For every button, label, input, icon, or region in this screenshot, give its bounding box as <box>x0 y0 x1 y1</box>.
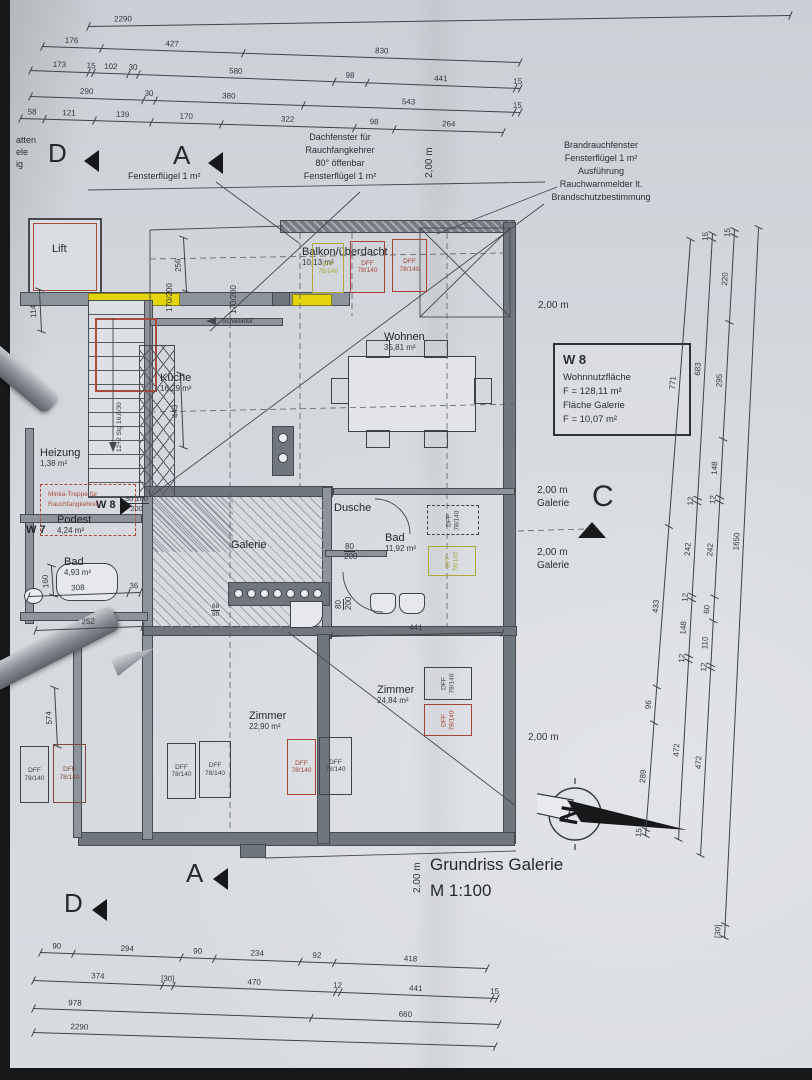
dff-window-box: DFF78/140 <box>428 546 476 576</box>
dff-window-box: DFF78/140 <box>350 241 385 293</box>
title-block: Grundriss Galerie M 1:100 <box>430 855 563 901</box>
dff-window-label: DFF78/140 <box>326 759 346 774</box>
dimension-text: 12+2 Stg 16,8/30 <box>116 402 123 452</box>
room-area: 4,93 m² <box>64 568 91 577</box>
annotation-text: Minka-Treppe fürRauchfangkehrer <box>48 490 98 509</box>
dff-window-box: DFF78/140 <box>287 739 316 795</box>
dimension-value: 15 <box>701 232 710 241</box>
dimension-value: 441 <box>409 623 423 632</box>
dimension-value: 374 <box>91 971 105 981</box>
unit-id: W 8 <box>563 352 681 367</box>
dimension-value: 771 <box>668 376 678 390</box>
dimension-value: 294 <box>120 944 134 953</box>
room-area: 1,38 m² <box>40 459 80 468</box>
dff-window-box: DFF78/140 <box>424 667 472 700</box>
dimension-value: 308 <box>71 583 85 592</box>
entry-arrow <box>120 497 132 515</box>
dimension-value: 472 <box>672 743 682 757</box>
annotation-text: BrandrauchfensterFensterflügel 1 m²Ausfü… <box>551 139 650 204</box>
dimension-value: 114 <box>29 305 39 318</box>
dimension-value: 289 <box>638 769 648 783</box>
dff-window-label: DFF78/140 <box>358 260 378 275</box>
dff-window-box: DFF78/140 <box>167 743 196 799</box>
dimension-value: 574 <box>44 711 54 725</box>
room-area: 4,24 m² <box>57 526 91 535</box>
dimension-value: 58 <box>28 107 37 116</box>
dimension-value: 92 <box>312 951 321 960</box>
dimension-value: 160 <box>41 574 51 588</box>
dimension-value: 15 <box>723 228 732 237</box>
dimension-value: 173 <box>53 60 67 69</box>
dimension-value: 543 <box>402 97 416 106</box>
dimension-value: 441 <box>409 984 423 994</box>
dimension-value: 295 <box>714 374 724 388</box>
dff-window-label: DFF78/140 <box>444 551 459 571</box>
dimension-value: 242 <box>683 542 693 556</box>
section-marker-a: A <box>173 140 190 171</box>
dimension-value: 98 <box>345 71 354 80</box>
info-line: F = 10,07 m² <box>563 413 681 427</box>
annotation-text: 2,00 mGalerie <box>537 484 569 510</box>
dff-window-box: DFF78/140 <box>312 243 344 293</box>
section-marker-a: A <box>186 858 203 889</box>
dimension-value: 12 <box>708 495 717 504</box>
annotation-text: Fensterflügel 1 m² <box>128 170 201 183</box>
dff-window-label: DFF78/140 <box>318 261 338 276</box>
section-marker-triangle <box>213 868 228 890</box>
dimension-value: 90 <box>193 946 202 955</box>
dimension-value: 256 <box>173 258 183 272</box>
annotation-text: Schiebetür <box>222 317 253 327</box>
dimension-text: 2,00 m <box>412 862 423 893</box>
dimension-value: 830 <box>375 46 389 55</box>
room-label: Galerie <box>231 539 266 551</box>
dimension-value: 441 <box>434 74 448 83</box>
dimension-text: 6880 <box>211 603 220 618</box>
dimension-value: 472 <box>694 756 704 770</box>
section-marker-d: D <box>64 888 83 919</box>
dimension-value: 978 <box>68 998 82 1007</box>
room-label: Wohnen35,81 m² <box>384 331 425 352</box>
section-marker-triangle <box>578 522 606 538</box>
dimension-value: 102 <box>104 62 118 71</box>
dimension-value: 12 <box>680 593 689 602</box>
dff-window-label: DFF78/140 <box>172 764 192 779</box>
dimension-value: 90 <box>52 941 61 950</box>
room-area: 22,90 m² <box>249 722 286 731</box>
dimension-value: 220 <box>720 272 730 286</box>
dff-window-box: DFF78/140 <box>427 505 479 535</box>
annotation-text: atteneleig <box>16 134 36 170</box>
room-area: 24,84 m² <box>377 696 414 705</box>
section-marker-triangle <box>84 150 99 172</box>
room-area: 11,92 m² <box>385 544 416 553</box>
dff-window-label: DFF78/140 <box>292 760 312 775</box>
annotation-text: 2,00 mGalerie <box>537 546 569 572</box>
dimension-text: 2,00 m <box>424 147 435 178</box>
dimension-value: 322 <box>281 115 295 124</box>
dff-window-box: DFF78/140 <box>319 737 352 795</box>
section-marker-c: C <box>592 480 614 514</box>
dimension-text: 80200 <box>344 542 357 561</box>
unit-info-box: W 8 Wohnnutzfläche F = 128,11 m² Fläche … <box>553 343 691 436</box>
dimension-value: 36 <box>129 581 138 590</box>
dimension-value: 427 <box>165 39 179 48</box>
section-marker-triangle <box>208 152 223 174</box>
dimension-value: 98 <box>370 117 379 126</box>
room-label: Zimmer22,90 m² <box>249 710 286 731</box>
dimension-value: 380 <box>222 91 236 100</box>
dimension-value: 252 <box>81 617 95 626</box>
compass-graphic: N <box>537 778 717 858</box>
dff-window-box: DFF78/140 <box>20 746 49 803</box>
dff-window-box: DFF78/140 <box>424 704 472 736</box>
dff-window-box: DFF78/140 <box>199 741 231 798</box>
dimension-text: 170/200 <box>229 285 238 314</box>
dimension-value: 15 <box>634 828 644 838</box>
info-line: F = 128,11 m² <box>563 385 681 399</box>
dff-window-box: DFF78/140 <box>53 744 86 803</box>
dimension-value: 580 <box>229 66 243 75</box>
north-compass: N <box>537 778 717 858</box>
dff-window-label: DFF78/140 <box>445 510 460 530</box>
dff-window-label: DFF78/140 <box>440 710 455 730</box>
dimension-value: 242 <box>705 543 715 557</box>
dimension-value: 139 <box>116 110 130 119</box>
room-area: 35,81 m² <box>384 343 425 352</box>
dff-window-label: DFF78/140 <box>60 766 80 781</box>
section-marker-triangle <box>92 899 107 921</box>
unit-label: W 7 <box>26 524 46 536</box>
dimension-value: 443 <box>170 404 180 418</box>
dff-window-box: DFF78/140 <box>392 239 427 292</box>
room-label: Podest4,24 m² <box>57 514 91 535</box>
dff-window-label: DFF78/140 <box>25 767 45 782</box>
dimension-value: 30 <box>128 63 137 72</box>
dimension-text: 170/200 <box>165 283 174 312</box>
info-line: Wohnnutzfläche <box>563 371 681 385</box>
dimension-value: 170 <box>179 112 193 121</box>
dimension-value: [30] <box>713 924 723 938</box>
dimension-value: 418 <box>404 954 418 963</box>
room-area: 16,29 m² <box>160 384 192 393</box>
dimension-value: 96 <box>644 700 654 710</box>
compass-letter: N <box>553 803 586 827</box>
dimension-value: 470 <box>247 977 261 987</box>
dimension-value: 60 <box>702 605 711 614</box>
dimension-value: 2290 <box>114 14 132 23</box>
room-label: Bad4,93 m² <box>64 556 91 577</box>
room-label: Dusche <box>334 502 371 514</box>
dimension-value: 2290 <box>70 1022 88 1032</box>
room-label: Küche16,29 m² <box>160 372 192 393</box>
section-marker-d: D <box>48 138 67 169</box>
dimension-value: 433 <box>651 599 661 613</box>
room-label: Bad11,92 m² <box>385 532 416 553</box>
dimension-text: 2,00 m <box>538 300 569 311</box>
room-label: Zimmer24,84 m² <box>377 684 414 705</box>
dff-window-label: DFF78/140 <box>400 258 420 273</box>
dimension-value: 12 <box>686 496 695 505</box>
dimension-value: [30] <box>161 974 175 984</box>
floorplan-photo: W 8 Wohnnutzfläche F = 128,11 m² Fläche … <box>0 0 812 1080</box>
room-label: Lift <box>52 243 67 255</box>
dimension-value: 176 <box>65 36 79 45</box>
dimension-value: 148 <box>710 461 720 475</box>
dimension-value: 264 <box>442 119 456 128</box>
dimension-value: 121 <box>62 108 76 117</box>
annotation-text: Dachfenster fürRauchfangkehrer80° öffenb… <box>304 131 377 183</box>
dimension-value: 234 <box>250 949 264 958</box>
dimension-value: 30 <box>144 89 153 98</box>
dimension-text: 80200 <box>334 597 353 610</box>
room-label: Heizung1,38 m² <box>40 447 80 468</box>
dff-window-label: DFF78/140 <box>440 674 455 694</box>
dimension-value: 110 <box>700 636 710 649</box>
dimension-value: 148 <box>679 621 689 635</box>
dff-window-label: DFF78/140 <box>205 762 225 777</box>
dimension-text: 2,00 m <box>528 732 559 743</box>
unit-label: W 8 <box>96 499 116 511</box>
dimension-value: 290 <box>80 87 94 96</box>
dimension-value: 1650 <box>732 532 742 550</box>
dimension-value: 660 <box>399 1010 413 1019</box>
drawing-scale: M 1:100 <box>430 881 563 901</box>
dimension-value: 683 <box>693 362 703 376</box>
info-line: Fläche Galerie <box>563 399 681 413</box>
